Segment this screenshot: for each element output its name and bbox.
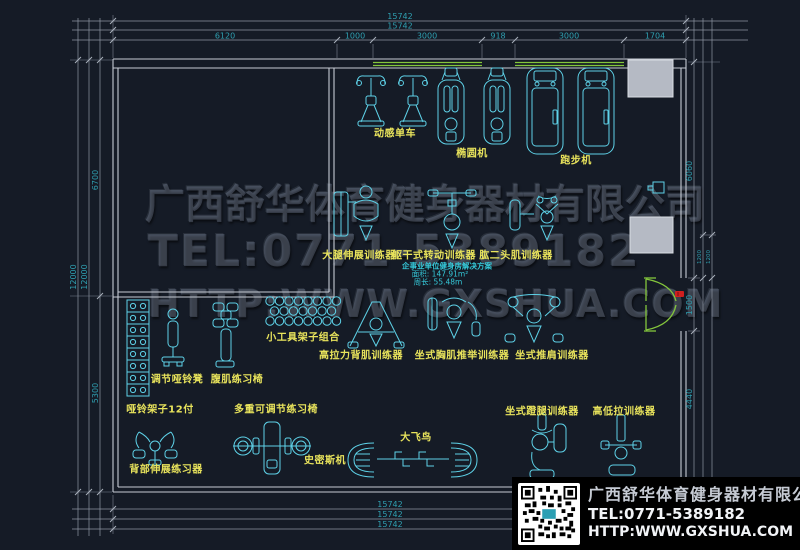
label-treadmill: 跑步机 bbox=[560, 152, 592, 167]
label-back-ext: 背部伸展练习器 bbox=[129, 461, 203, 476]
elliptical-2 bbox=[484, 68, 510, 144]
dim-bottom-2: 15742 bbox=[377, 520, 402, 529]
qr-code-icon bbox=[518, 483, 580, 545]
dim-right-seg-1: 1500 bbox=[685, 295, 694, 315]
label-crossover: 大飞鸟 bbox=[400, 429, 432, 444]
biceps-machine bbox=[510, 196, 558, 240]
lat-pulldown-machine bbox=[348, 302, 404, 348]
dim-bottom-0: 15742 bbox=[377, 500, 402, 509]
label-ab-chair: 腹肌练习椅 bbox=[211, 371, 264, 386]
label-shoulder-press: 坐式推肩训练器 bbox=[515, 347, 589, 362]
label-hi-lo: 高低拉训练器 bbox=[593, 403, 656, 418]
spin-bike-1 bbox=[357, 76, 386, 126]
label-tool-rack: 小工具架子组合 bbox=[266, 329, 340, 344]
dim-top-seg-3: 918 bbox=[490, 32, 505, 41]
adjustable-bench bbox=[162, 309, 184, 366]
dim-right-seg-0: 6060 bbox=[685, 161, 694, 181]
dumbbell-rack bbox=[127, 300, 149, 396]
dim-top-seg-1: 1000 bbox=[345, 32, 365, 41]
wall-fixture bbox=[648, 182, 664, 193]
double-door bbox=[644, 278, 676, 331]
crossover-tower bbox=[451, 443, 477, 477]
dim-right-small-0: 1200 bbox=[697, 250, 703, 264]
floor-plan-drawing: 15742 15742 6120 1000 3000 918 3000 1704… bbox=[0, 0, 800, 550]
elliptical-1 bbox=[438, 68, 464, 144]
leg-press-machine bbox=[530, 414, 566, 478]
dim-top-seg-0: 6120 bbox=[215, 32, 235, 41]
treadmill-1 bbox=[527, 68, 563, 154]
columns bbox=[628, 60, 673, 253]
dim-right-seg-2: 4440 bbox=[685, 389, 694, 409]
spin-bike-2 bbox=[399, 76, 428, 126]
info-tel: TEL:0771-5389182 bbox=[588, 505, 800, 524]
tool-rack bbox=[266, 297, 341, 325]
treadmill-2 bbox=[578, 68, 614, 154]
info-url: HTTP:WWW.GXSHUA.COM bbox=[588, 524, 800, 542]
label-multi-bench: 多重可调节练习椅 bbox=[234, 401, 318, 416]
plan-note-perimeter: 周长: 55.48m bbox=[414, 277, 463, 288]
dim-top-seg-5: 1704 bbox=[645, 32, 665, 41]
label-elliptical: 椭圆机 bbox=[456, 145, 488, 160]
dim-top-seg-4: 3000 bbox=[559, 32, 579, 41]
dim-left-total-1: 12000 bbox=[69, 264, 78, 289]
label-leg-extension: 大腿伸展训练器 bbox=[322, 247, 396, 262]
label-biceps: 肱二头肌训练器 bbox=[479, 247, 553, 262]
label-torso-rotation: 躯干式转动训练器 bbox=[392, 247, 476, 262]
multi-adjust-bench bbox=[233, 422, 311, 474]
chest-press-machine bbox=[428, 298, 480, 338]
label-chest-press: 坐式胸肌推举训练器 bbox=[415, 347, 510, 362]
label-smith: 史密斯机 bbox=[304, 452, 346, 467]
smith-machine bbox=[348, 443, 374, 477]
dim-right-small-1: 1200 bbox=[706, 250, 712, 264]
shoulder-press-machine bbox=[505, 295, 563, 343]
info-company-name: 广西舒华体育健身器材有限公司 bbox=[588, 485, 800, 505]
company-info-panel: 广西舒华体育健身器材有限公司 TEL:0771-5389182 HTTP:WWW… bbox=[512, 477, 800, 550]
door-tag bbox=[675, 291, 684, 297]
label-spin-bike: 动感单车 bbox=[374, 125, 416, 140]
dim-top-seg-2: 3000 bbox=[417, 32, 437, 41]
dim-bottom-1: 15742 bbox=[377, 510, 402, 519]
label-adj-bench: 调节哑铃凳 bbox=[151, 371, 204, 386]
dim-left-seg-0: 6700 bbox=[91, 170, 100, 190]
label-lat-pull: 高拉力背肌训练器 bbox=[319, 347, 403, 362]
hi-lo-pull-machine bbox=[601, 415, 641, 475]
label-leg-press: 坐式蹬腿训练器 bbox=[505, 403, 579, 418]
dim-left-seg-1: 5300 bbox=[91, 383, 100, 403]
leg-extension-machine bbox=[334, 186, 378, 240]
label-dumbbell-rack: 哑铃架子12付 bbox=[126, 401, 193, 416]
dim-top-total-1: 15742 bbox=[387, 12, 412, 21]
dim-top-total-2: 15742 bbox=[387, 22, 412, 31]
window-lines bbox=[373, 63, 624, 66]
dim-left-total-2: 12000 bbox=[80, 264, 89, 289]
ab-chair bbox=[213, 303, 238, 367]
crossover-beam bbox=[377, 452, 449, 466]
torso-rotation-machine bbox=[428, 190, 476, 248]
cad-floor-plan: 广西舒华体育健身器材有限公司 TEL:0771-5389182 HTTP:WWW… bbox=[0, 0, 800, 550]
